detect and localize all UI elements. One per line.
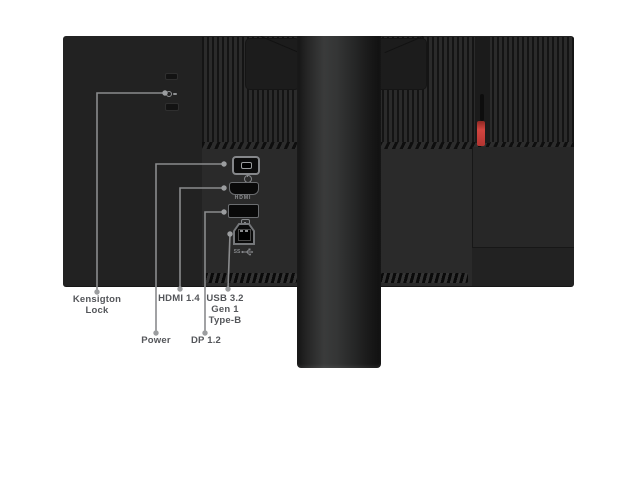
- power-port: [232, 156, 260, 175]
- kensington-lock-label: Kensigton Lock: [57, 294, 137, 316]
- power-pin: [241, 162, 252, 169]
- usb-label: USB 3.2 Gen 1 Type-B: [195, 293, 255, 326]
- bottom-vent-left: [205, 273, 297, 283]
- usb-label-dot: [225, 286, 230, 291]
- usb-b-contact: [245, 230, 248, 232]
- usb-ss-icon: SS: [231, 248, 257, 256]
- usb-b-port: [233, 223, 255, 245]
- accent-slot: [480, 94, 484, 121]
- displayport-port: [228, 204, 259, 218]
- usb-ss-text: SS: [234, 248, 241, 256]
- hdmi-port: [229, 182, 259, 195]
- kensington-slot-top: [165, 73, 178, 80]
- lock-ring-icon: [166, 91, 172, 97]
- product-diagram: HDMI SS: [0, 0, 640, 480]
- hdmi-port-marking: HDMI: [223, 195, 263, 201]
- right-panel-inset: [473, 147, 574, 247]
- bottom-vent-right: [381, 273, 468, 283]
- panel-seam-vertical: [472, 147, 473, 248]
- usb-b-contact: [240, 230, 243, 232]
- usb-trident-icon: [241, 248, 254, 256]
- accent-channel: [475, 37, 490, 143]
- lenovo-red-accent: [477, 121, 485, 146]
- hdmi-label-dot: [177, 286, 182, 291]
- hinge-plate-left: [245, 38, 300, 90]
- dp-label: DP 1.2: [176, 335, 236, 346]
- monitor-stand-column: [297, 36, 381, 368]
- kensington-lock-icon: [166, 90, 181, 97]
- kensington-slot-bottom: [165, 103, 179, 111]
- panel-seam-horizontal: [472, 247, 574, 248]
- lock-bar-icon: [173, 93, 177, 95]
